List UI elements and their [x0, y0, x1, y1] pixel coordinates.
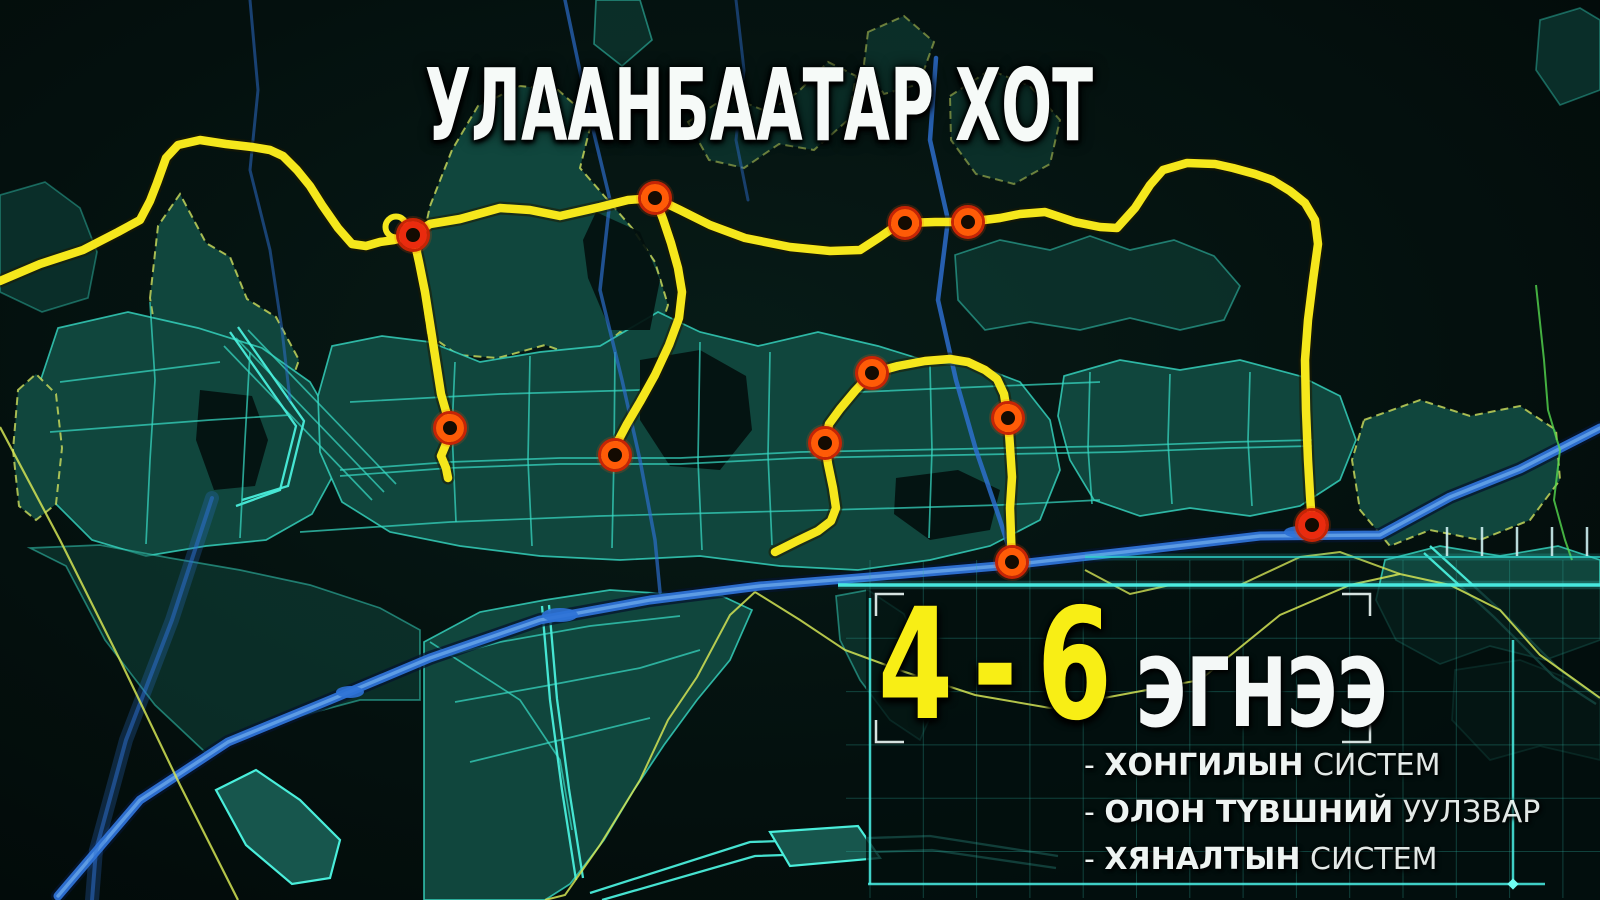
route-node: [886, 204, 924, 242]
feature-list: - ХОНГИЛЫН СИСТЕМ- ОЛОН ТҮВШНИЙ УУЛЗВАР-…: [1084, 742, 1540, 883]
headline-lane-count: 4-6: [878, 600, 1132, 732]
route-node: [636, 179, 674, 217]
route-node: [394, 216, 432, 254]
feature-item: - ХОНГИЛЫН СИСТЕМ: [1084, 742, 1540, 789]
map-title: УЛААНБААТАР ХОТ: [425, 56, 1093, 156]
route-node: [949, 203, 987, 241]
route-node: [596, 436, 634, 474]
route-node: [431, 409, 469, 447]
feature-item: - ОЛОН ТҮВШНИЙ УУЛЗВАР: [1084, 789, 1540, 836]
headline-lane-unit: ЭГНЭЭ: [1136, 652, 1387, 738]
route-node: [1293, 506, 1331, 544]
feature-item: - ХЯНАЛТЫН СИСТЕМ: [1084, 836, 1540, 883]
route-node: [806, 424, 844, 462]
route-node: [989, 399, 1027, 437]
broadcast-map-graphic: УЛААНБААТАР ХОТ 4-6 ЭГНЭЭ - ХОНГИЛЫН СИС…: [0, 0, 1600, 900]
route-node: [853, 354, 891, 392]
